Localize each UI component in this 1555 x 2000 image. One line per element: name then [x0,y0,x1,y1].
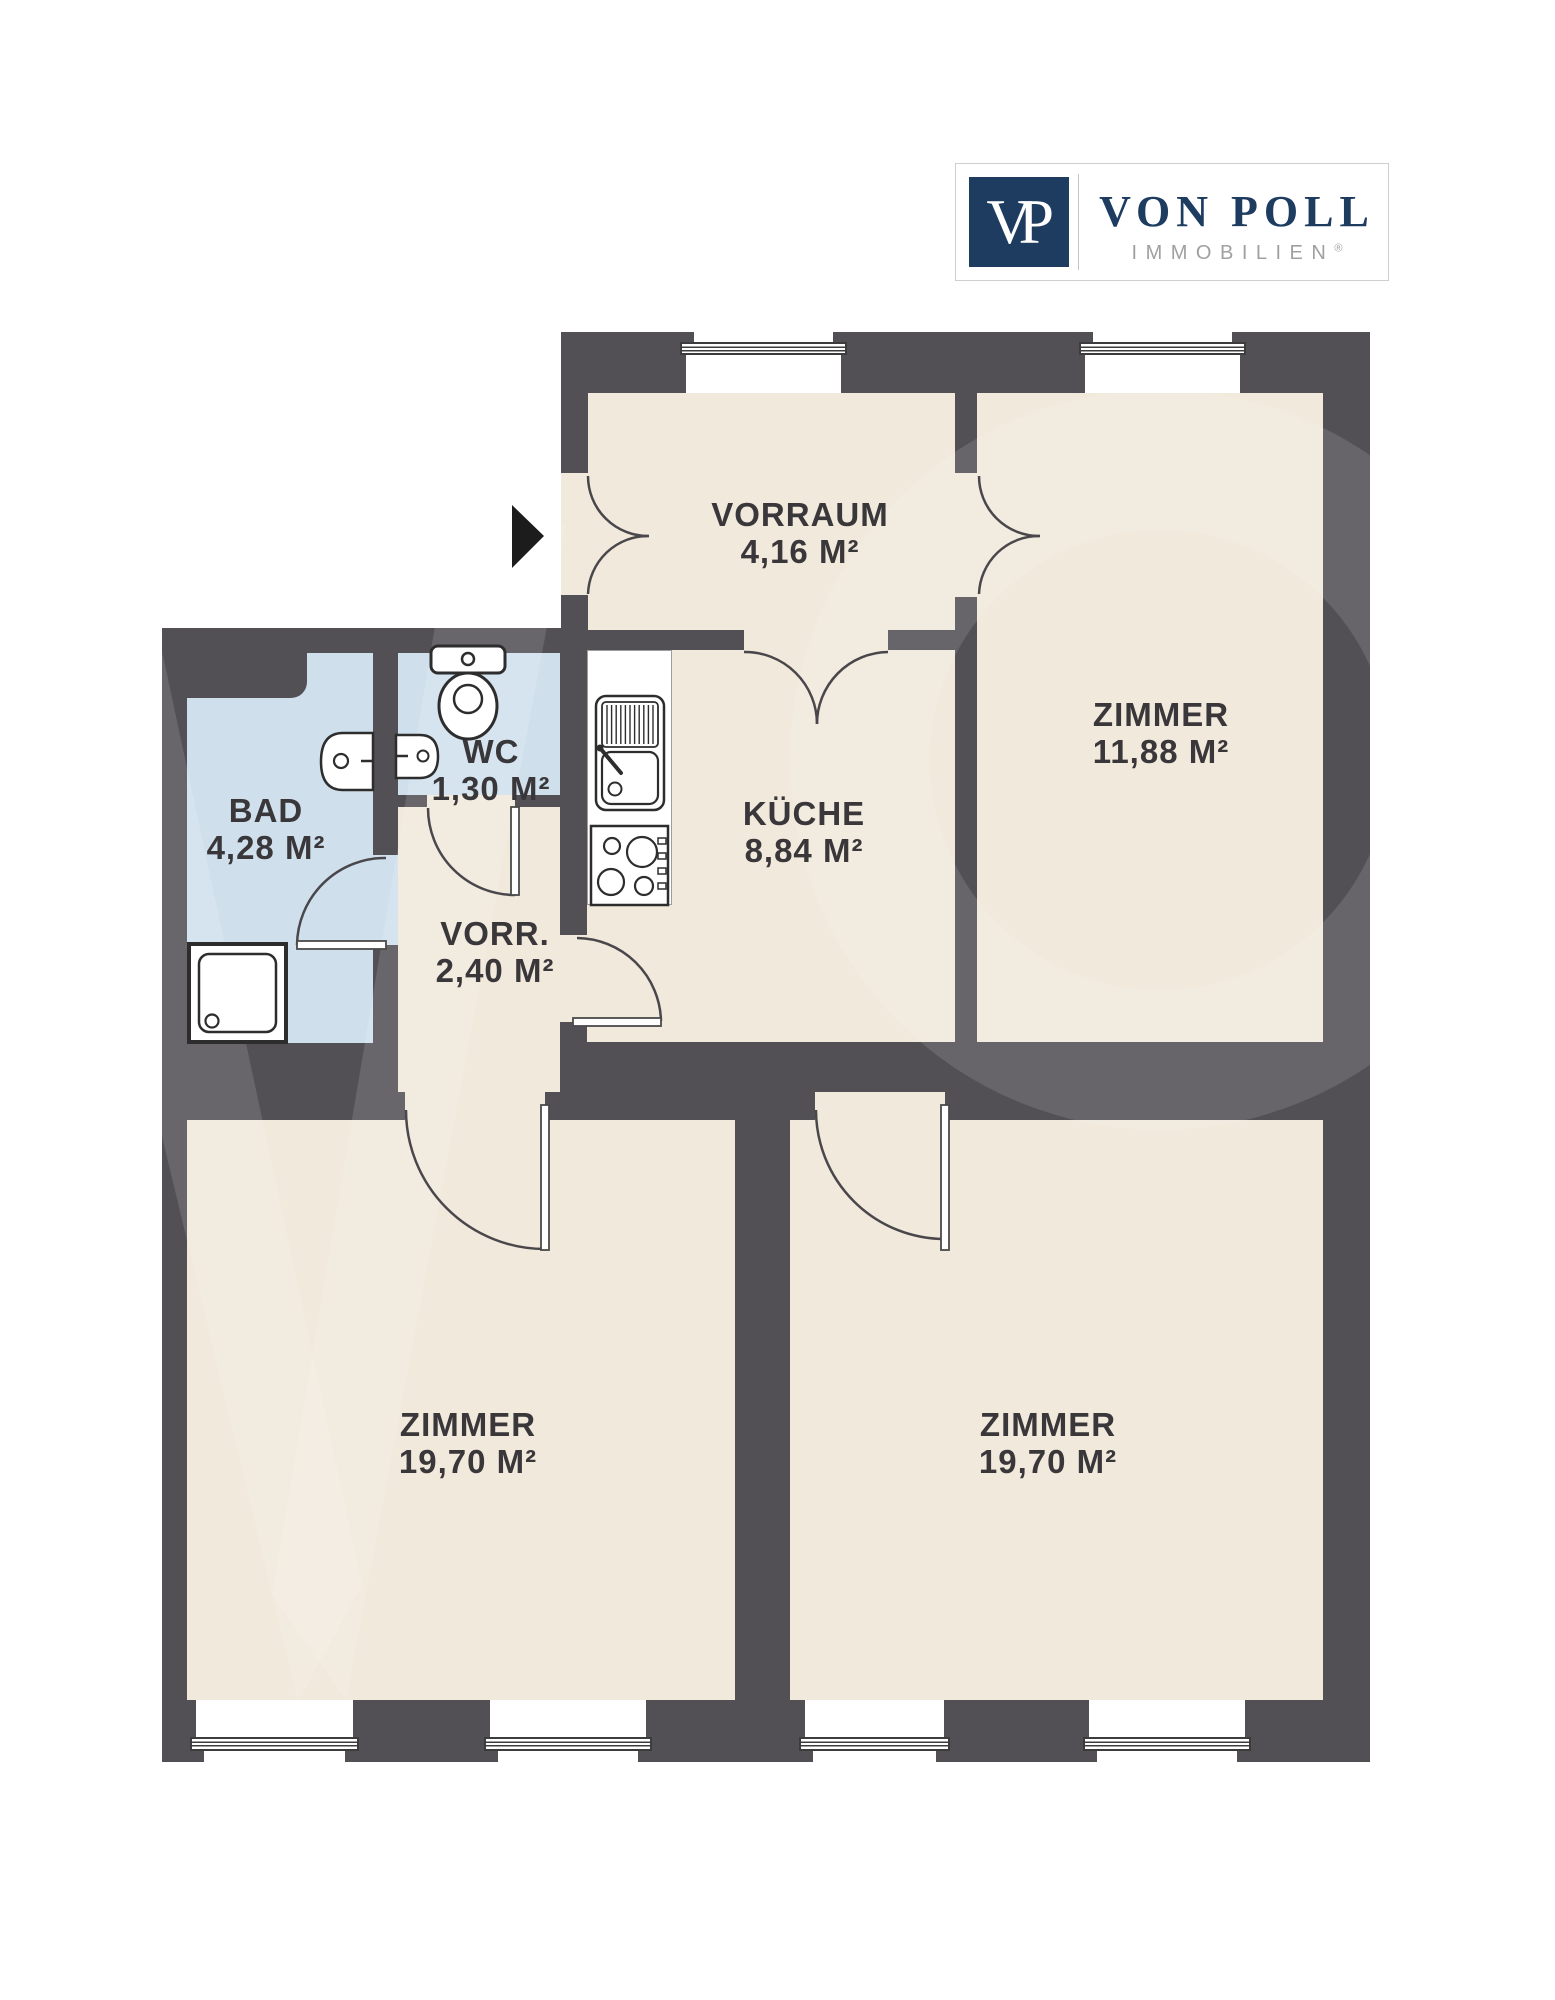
room-area: 19,70 M² [399,1443,537,1480]
window-bottom-1-niche [196,1700,353,1737]
opening-zimmer-right [815,1092,945,1120]
logo-subtitle-text: IMMOBILIEN [1132,242,1335,264]
room-name: VORRAUM [711,496,889,533]
room-label-zimmer-left: ZIMMER 19,70 M² [399,1406,537,1480]
window-top-1-niche [686,355,841,393]
room-name: ZIMMER [1093,696,1229,733]
room-label-bad: BAD 4,28 M² [207,792,326,866]
room-name: WC [432,733,551,770]
opening-vorraum-kueche [744,630,888,651]
opening-vorraum-zimmer [955,473,977,597]
opening-entrance [561,473,588,595]
window-bottom-3-niche [805,1700,944,1737]
window-bottom-3-sill [813,1751,936,1764]
window-bottom-1-frame [190,1737,359,1751]
room-area: 8,84 M² [743,832,865,869]
window-bottom-3-frame [799,1737,950,1751]
window-bottom-4-frame [1083,1737,1251,1751]
window-top-1-frame [680,342,847,355]
room-area: 4,28 M² [207,829,326,866]
room-name: ZIMMER [979,1406,1117,1443]
window-bottom-2-frame [484,1737,652,1751]
room-label-vorraum: VORRAUM 4,16 M² [711,496,889,570]
room-area: 11,88 M² [1093,733,1229,770]
vonpoll-logo: VP VON POLL IMMOBILIEN® [955,163,1389,281]
window-top-1-sill [694,330,833,342]
room-area: 2,40 M² [436,952,555,989]
room-area: 19,70 M² [979,1443,1117,1480]
room-label-kueche: KÜCHE 8,84 M² [743,795,865,869]
opening-zimmer-left [405,1092,545,1120]
logo-brand: VON POLL [1098,186,1376,237]
registered-mark: ® [1334,242,1342,254]
room-label-zimmer-top: ZIMMER 11,88 M² [1093,696,1229,770]
wall-stub-wc-left [398,795,427,807]
room-area: 1,30 M² [432,770,551,807]
kitchen-counter [587,650,672,905]
vp-monogram-text: VP [986,185,1040,259]
entrance-arrow-icon [512,505,544,568]
window-bottom-4-sill [1097,1751,1237,1764]
opening-bad [373,855,398,945]
window-bottom-4-niche [1089,1700,1245,1737]
logo-divider [1078,174,1079,270]
window-top-2-niche [1085,355,1240,393]
window-bottom-2-niche [490,1700,646,1737]
room-area: 4,16 M² [711,533,889,570]
room-label-vorr: VORR. 2,40 M² [436,915,555,989]
window-top-2-frame [1079,342,1246,355]
room-label-zimmer-right: ZIMMER 19,70 M² [979,1406,1117,1480]
window-top-2-sill [1093,330,1232,342]
opening-kueche-vorr [560,935,587,1022]
room-name: BAD [207,792,326,829]
room-name: ZIMMER [399,1406,537,1443]
room-name: KÜCHE [743,795,865,832]
room-label-wc: WC 1,30 M² [432,733,551,807]
logo-subtitle: IMMOBILIEN® [1098,242,1376,265]
floorplan-page: VORRAUM 4,16 M² ZIMMER 11,88 M² WC 1,30 … [0,0,1555,2000]
window-bottom-1-sill [204,1751,345,1764]
vp-monogram-icon: VP [969,177,1069,267]
wall-bad-duct [187,653,307,698]
window-bottom-2-sill [498,1751,638,1764]
room-name: VORR. [436,915,555,952]
